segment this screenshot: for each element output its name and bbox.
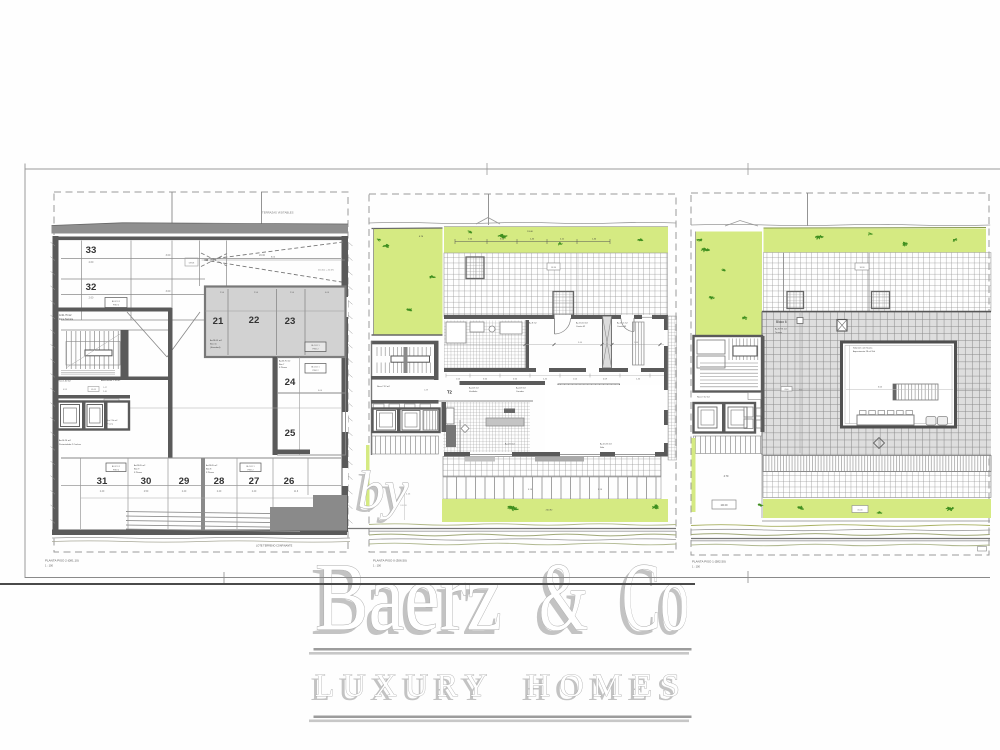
svg-text:24: 24 (285, 377, 296, 388)
svg-text:A=28.05 m2: A=28.05 m2 (210, 339, 223, 342)
svg-text:A= 16.10 m2: A= 16.10 m2 (576, 322, 589, 325)
svg-text:Nass 7.52 m2: Nass 7.52 m2 (697, 397, 711, 399)
svg-text:3 Plazas: 3 Plazas (279, 367, 287, 369)
svg-text:1 : 100: 1 : 100 (692, 565, 700, 569)
svg-text:1 : 100: 1 : 100 (45, 564, 53, 568)
svg-text:2.40: 2.40 (182, 491, 187, 493)
svg-text:A=28.05 m2: A=28.05 m2 (134, 464, 146, 467)
svg-text:LUXURY: LUXURY (315, 668, 496, 704)
svg-text:30: 30 (141, 476, 152, 487)
svg-text:Zona Técnica: Zona Técnica (59, 319, 74, 321)
svg-text:25: 25 (285, 428, 296, 439)
svg-text:Preinstalado 2 Coches: Preinstalado 2 Coches (59, 443, 82, 446)
svg-text:19.40: 19.40 (527, 231, 533, 233)
svg-text:Pass 1.60 m2: Pass 1.60 m2 (58, 381, 72, 383)
svg-text:23: 23 (285, 316, 296, 327)
svg-text:PISO 2: PISO 2 (312, 370, 318, 372)
svg-text:3 Plazas: 3 Plazas (206, 472, 214, 474)
svg-text:A= 16.1 m2: A= 16.1 m2 (617, 322, 629, 325)
svg-text:2.50: 2.50 (144, 491, 149, 493)
svg-text:by: by (358, 460, 409, 520)
svg-text:Vestíbulo: Vestíbulo (469, 390, 478, 393)
svg-text:BLOCO 1: BLOCO 1 (311, 367, 319, 369)
svg-text:33: 33 (86, 245, 97, 256)
svg-text:Terraço: Terraço (775, 331, 783, 334)
svg-text:Bloco 6: Bloco 6 (776, 320, 787, 324)
svg-text:TERRAZAS VISITABLES: TERRAZAS VISITABLES (262, 211, 294, 215)
svg-text:A=28.05 m2: A=28.05 m2 (206, 464, 218, 467)
svg-text:4.70: 4.70 (724, 475, 729, 478)
svg-text:Ness 7.52 m2: Ness 7.52 m2 (377, 386, 391, 388)
svg-text:HOMES: HOMES (526, 668, 689, 704)
svg-text:A=34.75 m2: A=34.75 m2 (279, 360, 291, 363)
svg-text:PISO 2: PISO 2 (113, 305, 119, 307)
svg-text:18.30: 18.30 (551, 267, 557, 269)
svg-text:27: 27 (249, 476, 260, 487)
svg-text:Co: Co (622, 544, 689, 651)
svg-text:28: 28 (214, 476, 225, 487)
svg-text:20.00: 20.00 (259, 254, 266, 257)
svg-text:Antecamara 5.18 m2: Antecamara 5.18 m2 (101, 379, 121, 382)
svg-text:Box 2 No m2: Box 2 No m2 (107, 420, 117, 422)
svg-text:09.08: 09.08 (91, 389, 96, 391)
svg-text:31: 31 (97, 476, 108, 487)
svg-text:Solarium com Sauna: Solarium com Sauna (853, 347, 873, 350)
svg-text:Box 11: Box 11 (210, 344, 217, 346)
svg-text:BLOCO 1: BLOCO 1 (311, 345, 319, 347)
svg-text:A=41.76 m2: A=41.76 m2 (59, 314, 72, 317)
svg-text:PLANTA PISO 0 (306.50): PLANTA PISO 0 (306.50) (373, 559, 407, 563)
svg-text:&: & (539, 544, 588, 651)
svg-text:(Standard): (Standard) (210, 346, 221, 349)
svg-text:PLANTA PISO 1 (582.50): PLANTA PISO 1 (582.50) (692, 560, 726, 564)
svg-text:A= 8 m2: A= 8 m2 (529, 322, 537, 325)
svg-text:09/08: 09/08 (189, 263, 195, 265)
svg-text:Cuarto 03: Cuarto 03 (617, 325, 627, 328)
svg-text:A=16.26 m2: A=16.26 m2 (59, 439, 72, 442)
svg-text:A=4.05 m2: A=4.05 m2 (469, 387, 480, 390)
svg-text:T2: T2 (447, 390, 453, 395)
svg-text:200.92: 200.92 (546, 510, 553, 512)
svg-text:BLOCO 1: BLOCO 1 (246, 466, 254, 468)
svg-text:29: 29 (179, 476, 190, 487)
svg-text:A= 45.35 m2: A= 45.35 m2 (600, 443, 613, 446)
svg-text:26: 26 (284, 476, 295, 487)
svg-text:2 Carry: 2 Carry (107, 424, 113, 426)
svg-text:Baerz: Baerz (315, 544, 502, 651)
svg-text:Corredor: Corredor (516, 391, 524, 393)
svg-text:Cuarto 02: Cuarto 02 (576, 325, 586, 328)
svg-text:BLOCO 1: BLOCO 1 (112, 301, 120, 303)
svg-text:Declive + 41.6%: Declive + 41.6% (318, 270, 334, 272)
svg-text:05.00: 05.00 (857, 509, 863, 511)
svg-text:A= 87.91 m2: A= 87.91 m2 (775, 328, 788, 331)
svg-text:PISO 2: PISO 2 (247, 469, 253, 471)
svg-text:A=4.03 m2: A=4.03 m2 (516, 387, 527, 390)
svg-text:22: 22 (249, 315, 260, 326)
svg-text:PISO 2: PISO 2 (113, 469, 119, 471)
svg-text:3.00: 3.00 (166, 290, 171, 293)
svg-text:2.40: 2.40 (252, 491, 257, 493)
svg-text:0500: 0500 (785, 389, 789, 391)
svg-text:100.00: 100.00 (720, 505, 728, 507)
svg-text:Box 9: Box 9 (134, 469, 140, 471)
svg-text:2.60: 2.60 (89, 261, 94, 264)
svg-text:LOTE TERRENO CONFINANTE: LOTE TERRENO CONFINANTE (256, 545, 293, 548)
svg-text:BLOCO 1: BLOCO 1 (112, 466, 120, 468)
svg-text:18.30: 18.30 (859, 267, 865, 269)
svg-text:Box 8: Box 8 (206, 469, 212, 471)
svg-text:1 : 100: 1 : 100 (373, 564, 381, 568)
svg-text:A=1.73 m2: A=1.73 m2 (505, 443, 516, 446)
svg-text:3 Plazas: 3 Plazas (134, 472, 142, 474)
svg-text:32: 32 (86, 282, 97, 293)
svg-text:3.00: 3.00 (166, 254, 171, 257)
svg-text:2.40: 2.40 (100, 491, 105, 493)
svg-text:2.60: 2.60 (89, 297, 94, 300)
svg-text:PLANTA PISO 2 (081.10): PLANTA PISO 2 (081.10) (45, 559, 79, 563)
svg-text:Box 7: Box 7 (279, 364, 285, 366)
svg-text:PISO 2: PISO 2 (312, 349, 318, 351)
svg-text:2.40: 2.40 (217, 491, 222, 493)
svg-text:Aquecimento 28 m2 Sol: Aquecimento 28 m2 Sol (853, 350, 876, 353)
svg-text:21: 21 (213, 316, 224, 327)
svg-text:11.6: 11.6 (294, 491, 299, 493)
